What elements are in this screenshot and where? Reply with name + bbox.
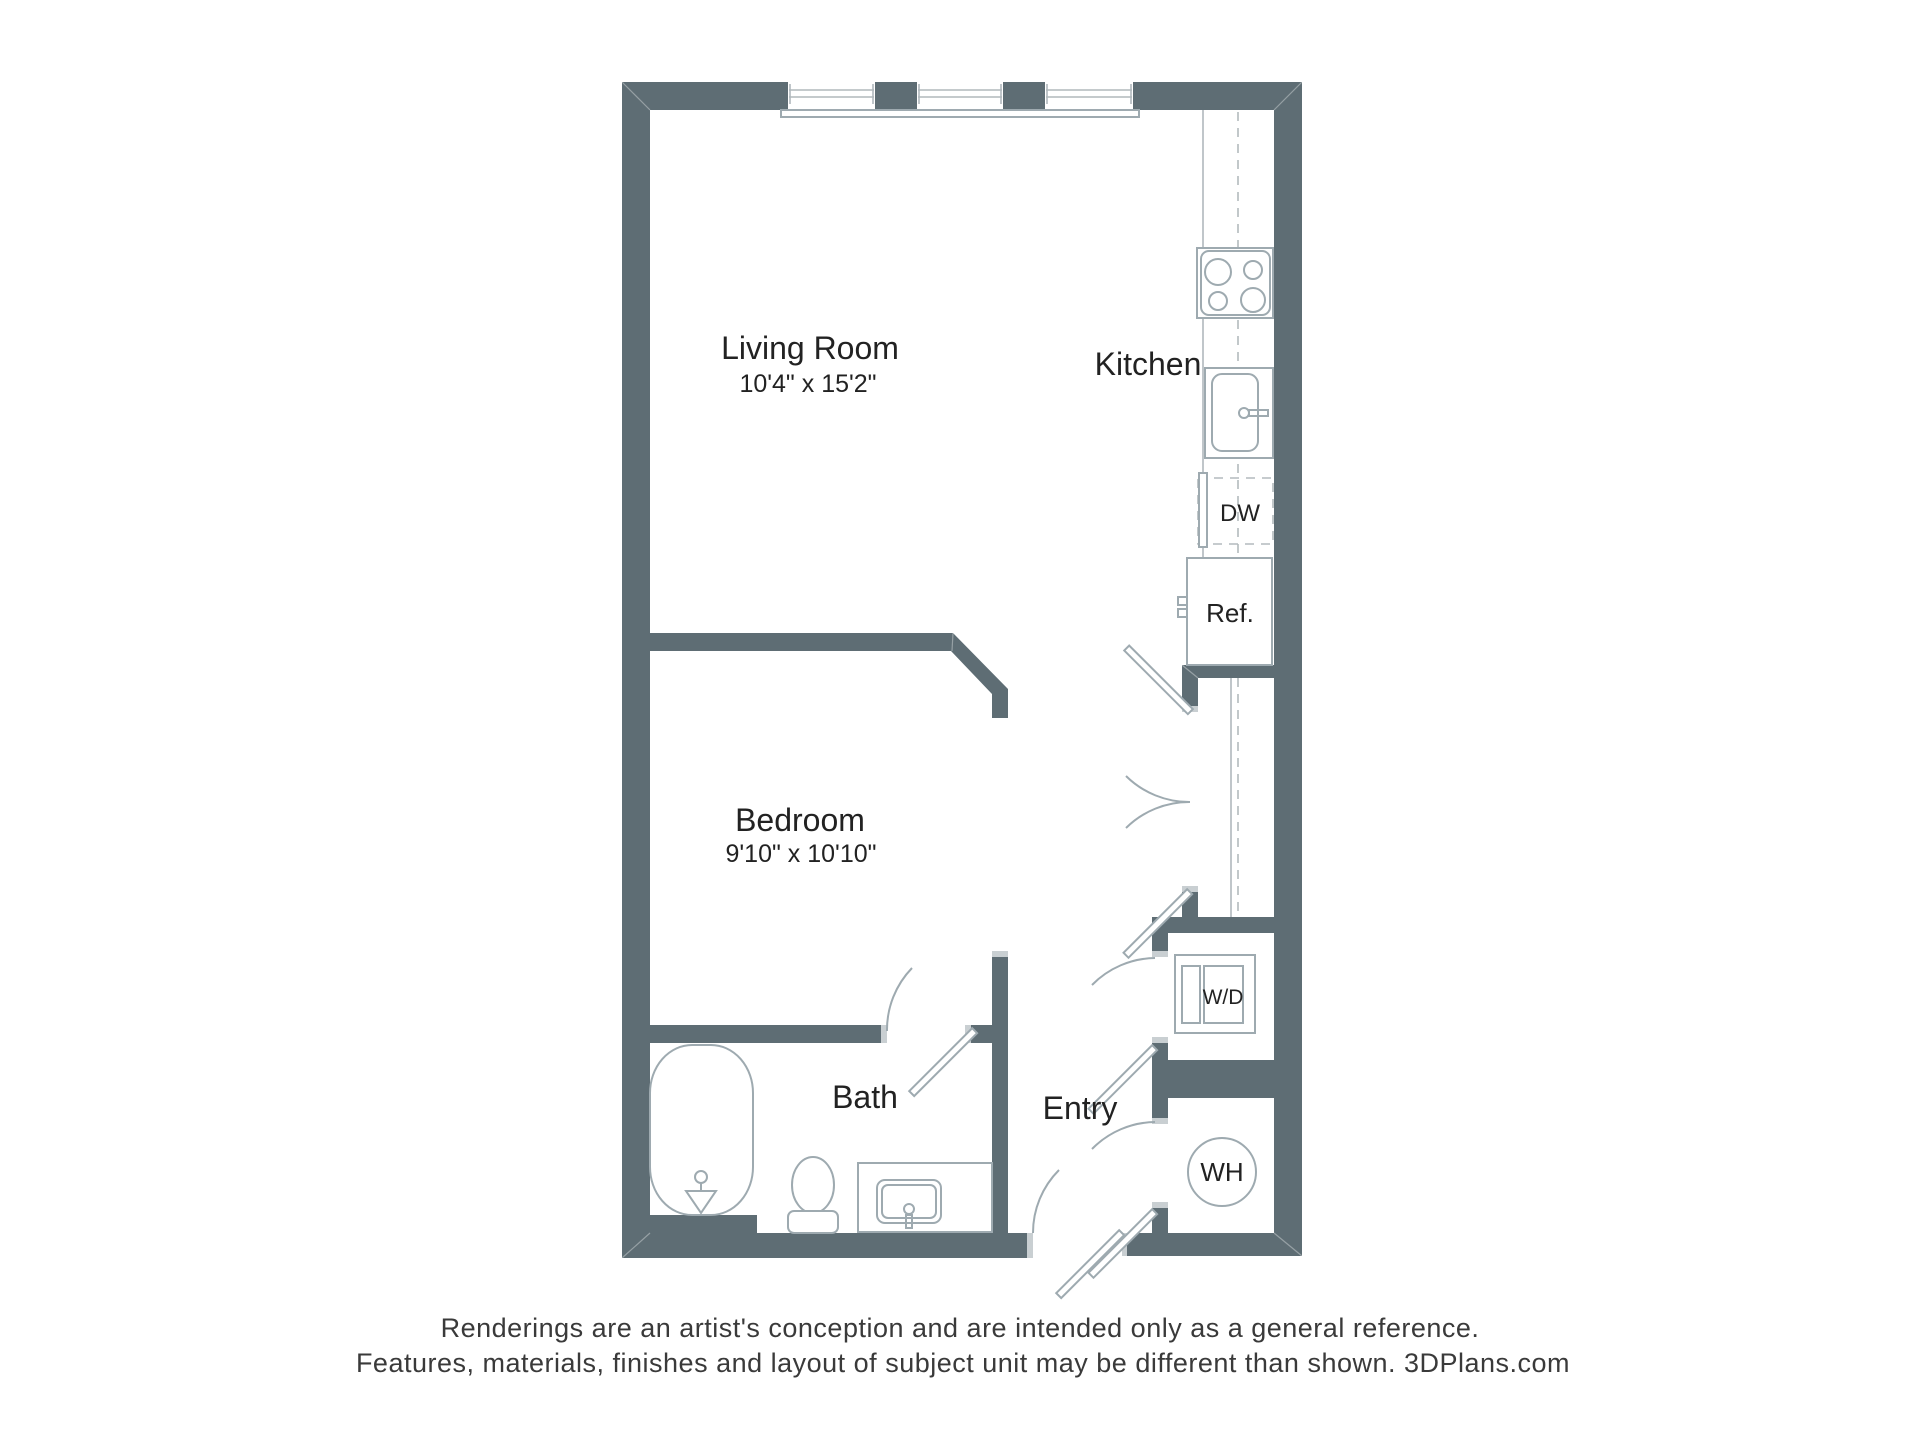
wall-wd-left-a	[1152, 933, 1168, 951]
faucet	[904, 1204, 914, 1214]
dishwasher-door	[1199, 473, 1207, 547]
wall-tub-foot	[650, 1215, 757, 1233]
window-pier-2	[1003, 82, 1045, 110]
bath-fixtures	[650, 1045, 992, 1233]
refrigerator-label: Ref.	[1206, 598, 1254, 628]
bathtub	[650, 1045, 753, 1215]
dishwasher: DW	[1198, 473, 1273, 547]
stove	[1197, 248, 1273, 318]
bath-label: Bath	[832, 1079, 898, 1115]
wall-right	[1274, 82, 1302, 1256]
jamb-cap	[1152, 1118, 1168, 1124]
vanity-sink	[858, 1163, 992, 1232]
wall-wd-top	[1152, 917, 1274, 933]
wall-left	[622, 82, 650, 1258]
kitchen-sink	[1205, 368, 1273, 458]
water-heater: WH	[1188, 1138, 1256, 1206]
door-swing-arc	[1126, 776, 1190, 802]
faucet	[1239, 408, 1249, 418]
jamb-cap	[1152, 951, 1168, 957]
wall-bedroom-divider	[650, 633, 953, 651]
wall-wh-left-a	[1152, 1098, 1168, 1118]
floorplan-page: DW Ref.	[0, 0, 1920, 1440]
jamb-cap	[992, 951, 1008, 957]
kitchen-fixtures: DW Ref.	[1178, 110, 1273, 917]
footer-line-2: Features, materials, finishes and layout…	[356, 1348, 1570, 1378]
bath-door-arc	[887, 968, 912, 1031]
jamb-cap	[1152, 1037, 1168, 1043]
fridge-handle	[1178, 597, 1187, 605]
entry-label: Entry	[1043, 1090, 1118, 1126]
dishwasher-label: DW	[1220, 500, 1260, 527]
entry-door-leaf	[1056, 1230, 1124, 1298]
window-pier-1	[875, 82, 917, 110]
footer: Renderings are an artist's conception an…	[356, 1313, 1570, 1378]
jamb-cap	[1027, 1233, 1033, 1258]
jamb-cap	[1152, 1202, 1168, 1208]
wall-bedroom-angle	[951, 633, 1008, 718]
toilet-bowl	[792, 1157, 834, 1213]
refrigerator: Ref.	[1178, 558, 1272, 665]
floorplan-drawing: DW Ref.	[0, 0, 1920, 1440]
window-span-2	[917, 82, 1003, 110]
wall-hallway	[992, 957, 1008, 1233]
wd-door-arc	[1092, 958, 1155, 985]
bath-door-leaf	[909, 1028, 977, 1096]
living-room-label: Living Room	[721, 330, 899, 366]
bedroom-dims: 9'10" x 10'10"	[725, 840, 876, 868]
wall-bottom-left	[622, 1233, 1033, 1258]
footer-line-1: Renderings are an artist's conception an…	[441, 1313, 1480, 1343]
fridge-handle	[1178, 609, 1187, 617]
wall-bottom-right	[1122, 1233, 1302, 1256]
wh-door-arc	[1092, 1122, 1155, 1149]
washer-dryer: W/D	[1175, 955, 1255, 1033]
window-sill	[781, 110, 1139, 117]
living-room-dims: 10'4" x 15'2"	[739, 370, 876, 398]
kitchen-label: Kitchen	[1095, 346, 1202, 382]
room-labels: Living Room 10'4" x 15'2" Kitchen Bedroo…	[721, 330, 1201, 1126]
entry-door-arc	[1033, 1170, 1059, 1233]
washer-dryer-label: W/D	[1203, 986, 1244, 1009]
toilet-tank	[788, 1211, 838, 1233]
wall-wd-wh-divider	[1152, 1060, 1274, 1098]
door-swing-arc	[1126, 802, 1190, 828]
window-span-1	[788, 82, 875, 110]
bedroom-label: Bedroom	[735, 802, 865, 838]
water-heater-label: WH	[1200, 1157, 1243, 1187]
wall-bath-top-left	[650, 1025, 887, 1043]
window-span-3	[1045, 82, 1133, 110]
toilet	[788, 1157, 838, 1233]
